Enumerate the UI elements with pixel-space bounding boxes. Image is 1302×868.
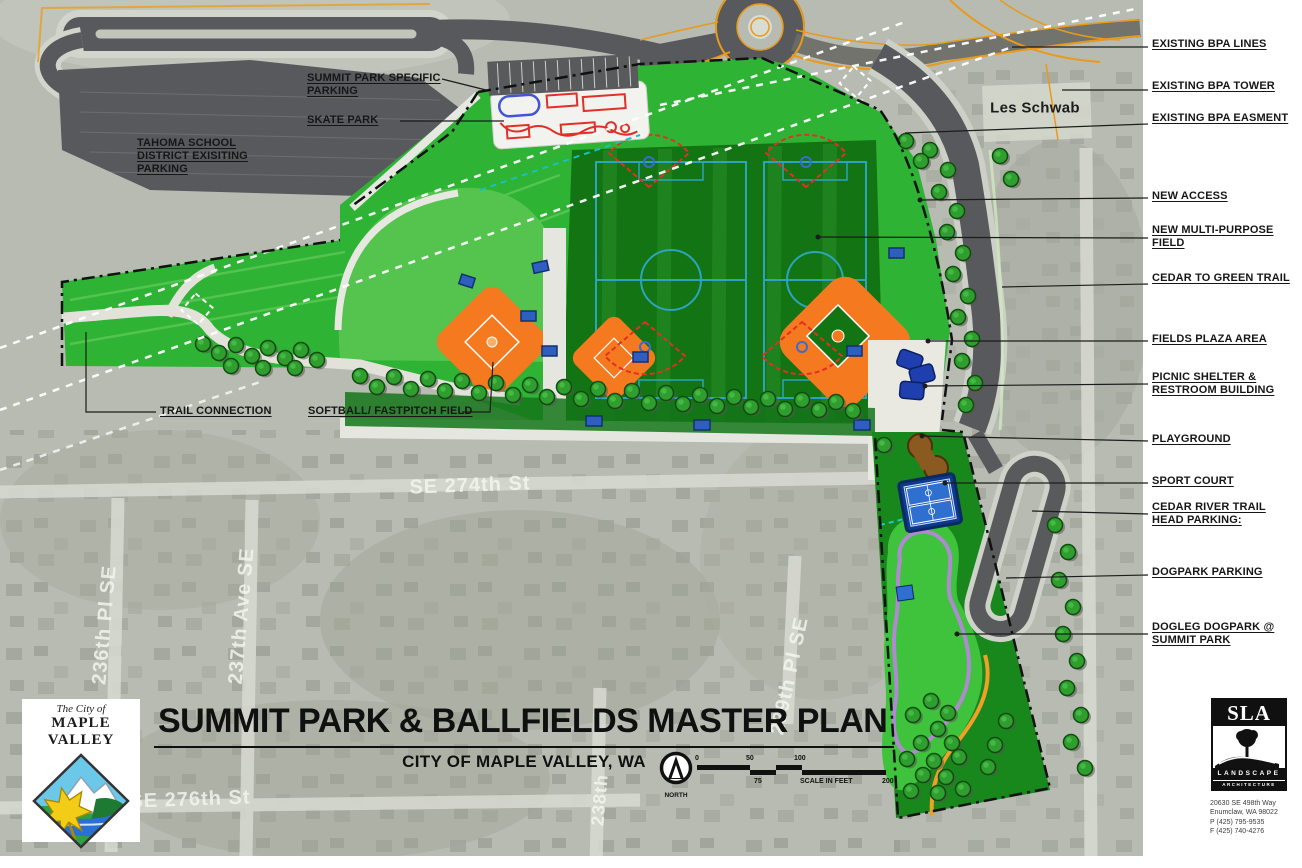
callout-cedar-river-trailhead-parking: CEDAR RIVER TRAIL HEAD PARKING: <box>1152 501 1300 527</box>
callout-dogpark-parking: DOGPARK PARKING <box>1152 566 1300 579</box>
callout-softball-fastpitch-field: SOFTBALL/ FASTPITCH FIELD <box>308 405 472 418</box>
callout-skate-park: SKATE PARK <box>307 114 378 127</box>
callout-sport-court: SPORT COURT <box>1152 475 1300 488</box>
north-label: NORTH <box>656 792 696 799</box>
callout-summit-park-specific-parking: SUMMIT PARK SPECIFIC PARKING <box>307 72 445 98</box>
firm-logo-box: SLA LANDSCAPE ARCHITECTURE <box>1211 698 1287 791</box>
city-logo-pretitle: The City of <box>22 699 140 715</box>
firm-band-landscape: LANDSCAPE <box>1213 768 1285 780</box>
north-arrow: NORTH <box>656 750 696 799</box>
street-label-se-274th: SE 274th St <box>409 472 531 499</box>
street-label-se-276th: SE 276th St <box>129 786 251 813</box>
callout-existing-bpa-easment: EXISTING BPA EASMENT <box>1152 112 1300 125</box>
street-label-les-schwab: Les Schwab <box>990 100 1080 117</box>
callout-picnic-shelter-restroom: PICNIC SHELTER & RESTROOM BUILDING <box>1152 371 1300 397</box>
firm-address: 20630 SE 498th Way Enumclaw, WA 98022 P … <box>1206 799 1292 837</box>
callout-trail-connection: TRAIL CONNECTION <box>160 405 272 418</box>
city-logo: The City of MAPLE VALLEY <box>22 699 140 842</box>
title-rule <box>154 746 894 748</box>
callout-existing-bpa-lines: EXISTING BPA LINES <box>1152 38 1300 51</box>
maple-valley-emblem-icon <box>26 751 136 851</box>
sport-court <box>898 473 962 532</box>
firm-initials: SLA <box>1213 700 1285 726</box>
callout-playground: PLAYGROUND <box>1152 433 1300 446</box>
callout-tahoma-school-parking: TAHOMA SCHOOL DISTRICT EXISITING PARKING <box>137 137 265 177</box>
scale-bar: 0 50 100 75 SCALE IN FEET 200 <box>694 755 894 789</box>
firm-fax: F (425) 740-4276 <box>1210 827 1292 836</box>
north-arrow-icon <box>658 750 694 786</box>
scale-units: SCALE IN FEET <box>800 778 853 785</box>
plan-title: SUMMIT PARK & BALLFIELDS MASTER PLAN <box>158 704 887 738</box>
firm-band-architecture: ARCHITECTURE <box>1213 780 1285 789</box>
city-logo-name: MAPLE VALLEY <box>22 715 140 749</box>
callout-dogleg-dogpark: DOGLEG DOGPARK @ SUMMIT PARK <box>1152 621 1300 647</box>
firm-address-line1: 20630 SE 498th Way <box>1210 799 1292 808</box>
firm-phone: P (425) 795-9535 <box>1210 818 1292 827</box>
firm-address-line2: Enumclaw, WA 98022 <box>1210 808 1292 817</box>
scale-tick-200: 200 <box>882 778 894 785</box>
callout-new-access: NEW ACCESS <box>1152 190 1300 203</box>
master-plan-sheet: SE 274th St 236th Pl SE 237th Ave SE 239… <box>0 0 1302 868</box>
scale-tick-100: 100 <box>794 755 806 762</box>
firm-tree-icon <box>1213 726 1285 768</box>
scale-bar-graphic <box>694 764 894 776</box>
scale-tick-0: 0 <box>695 755 699 762</box>
firm-logo: SLA LANDSCAPE ARCHITECTURE 20630 SE 498t… <box>1206 698 1292 837</box>
callout-existing-bpa-tower: EXISTING BPA TOWER <box>1152 80 1300 93</box>
callout-new-multi-purpose-field: NEW MULTI-PURPOSE FIELD <box>1152 224 1300 250</box>
scale-tick-50: 50 <box>746 755 754 762</box>
callout-fields-plaza-area: FIELDS PLAZA AREA <box>1152 333 1300 346</box>
callout-cedar-to-green-trail: CEDAR TO GREEN TRAIL <box>1152 272 1300 285</box>
scale-tick-75: 75 <box>754 778 762 785</box>
